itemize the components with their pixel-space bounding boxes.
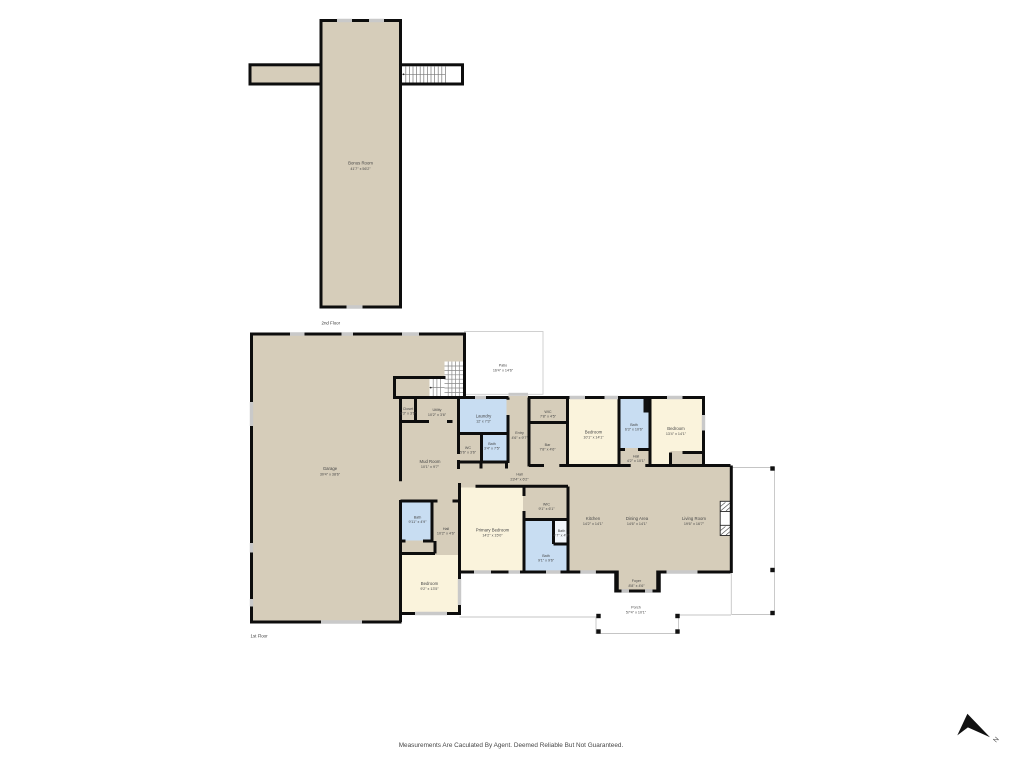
svg-text:14'2" x 14'1": 14'2" x 14'1" <box>583 522 604 526</box>
svg-text:9'2" x 13'5": 9'2" x 13'5" <box>420 587 439 591</box>
svg-text:4'7" x 4'9": 4'7" x 4'9" <box>553 534 570 538</box>
svg-text:Mud Room: Mud Room <box>419 459 440 464</box>
svg-text:Foyer: Foyer <box>632 579 642 583</box>
svg-text:57'4" x 10'1": 57'4" x 10'1" <box>626 611 647 615</box>
svg-text:Bar: Bar <box>545 443 552 447</box>
svg-text:12' x 7'3": 12' x 7'3" <box>476 420 492 424</box>
svg-text:16'4" x 14'6": 16'4" x 14'6" <box>493 369 514 373</box>
svg-text:Hall: Hall <box>516 473 523 477</box>
svg-text:Bath: Bath <box>542 554 550 558</box>
svg-text:Bedroom: Bedroom <box>421 581 439 586</box>
svg-text:Hall: Hall <box>633 455 640 459</box>
svg-text:4'6" x 9'7": 4'6" x 9'7" <box>511 436 528 440</box>
svg-text:Closet: Closet <box>403 407 413 411</box>
svg-text:WIC: WIC <box>544 410 552 414</box>
svg-text:Bath: Bath <box>414 516 422 520</box>
svg-text:Utility: Utility <box>432 408 441 412</box>
svg-text:30'4" x 38'6": 30'4" x 38'6" <box>320 473 341 477</box>
svg-text:Hall: Hall <box>443 527 450 531</box>
svg-text:Bonus Room: Bonus Room <box>348 161 373 166</box>
svg-text:13'4" x 14'1": 13'4" x 14'1" <box>666 432 687 436</box>
svg-text:9'1" x 6'1": 9'1" x 6'1" <box>538 507 555 511</box>
svg-text:23'4" x 6'2": 23'4" x 6'2" <box>510 478 529 482</box>
svg-text:2nd Floor: 2nd Floor <box>322 321 341 326</box>
svg-text:19'6" x 16'7": 19'6" x 16'7" <box>684 522 705 526</box>
svg-text:Measurements Are Caculated By: Measurements Are Caculated By Agent. Dee… <box>399 742 624 749</box>
svg-text:1st Floor: 1st Floor <box>251 634 269 639</box>
svg-text:8'8" x 4'6": 8'8" x 4'6" <box>628 584 645 588</box>
svg-text:14'6" x 14'1": 14'6" x 14'1" <box>627 522 648 526</box>
svg-text:Garage: Garage <box>323 466 338 471</box>
svg-text:14'2" x 15'0": 14'2" x 15'0" <box>482 534 503 538</box>
svg-text:Porch: Porch <box>631 606 641 610</box>
svg-text:WIC: WIC <box>543 503 551 507</box>
svg-text:Bedroom: Bedroom <box>667 426 685 431</box>
svg-text:10'1" x 14'1": 10'1" x 14'1" <box>583 436 604 440</box>
svg-text:Bedroom: Bedroom <box>585 430 603 435</box>
svg-text:Bath: Bath <box>558 529 566 533</box>
svg-text:9'11" x 4'9": 9'11" x 4'9" <box>409 520 428 524</box>
svg-text:Laundry: Laundry <box>476 414 492 419</box>
svg-text:Dining Area: Dining Area <box>626 516 649 521</box>
svg-text:Patio: Patio <box>499 364 507 368</box>
svg-text:7'8" x 4'6": 7'8" x 4'6" <box>539 448 556 452</box>
svg-text:WC: WC <box>465 446 471 450</box>
svg-text:6'3" x 10'6": 6'3" x 10'6" <box>625 428 644 432</box>
svg-text:9'1" x 9'6": 9'1" x 9'6" <box>538 559 555 563</box>
svg-text:4'2" x 10'1": 4'2" x 10'1" <box>627 459 646 463</box>
svg-text:3'4" x 7'5": 3'4" x 7'5" <box>484 447 501 451</box>
svg-text:5'6" x 3'6": 5'6" x 3'6" <box>460 451 477 455</box>
svg-text:10'2" x 3'6": 10'2" x 3'6" <box>428 413 447 417</box>
svg-text:Entry: Entry <box>515 431 524 435</box>
svg-text:Primary Bedroom: Primary Bedroom <box>476 528 510 533</box>
svg-text:Living Room: Living Room <box>682 516 706 521</box>
svg-text:10'2" x 4'6": 10'2" x 4'6" <box>437 532 456 536</box>
svg-text:Bath: Bath <box>630 423 638 427</box>
svg-text:Bath: Bath <box>488 442 496 446</box>
svg-text:41'7" x 56'2": 41'7" x 56'2" <box>350 167 371 171</box>
svg-text:10'1" x 9'7": 10'1" x 9'7" <box>421 465 440 469</box>
svg-text:3'3" x 3'6": 3'3" x 3'6" <box>400 412 417 416</box>
svg-text:7'8" x 4'5": 7'8" x 4'5" <box>540 415 557 419</box>
svg-text:Kitchen: Kitchen <box>586 516 601 521</box>
